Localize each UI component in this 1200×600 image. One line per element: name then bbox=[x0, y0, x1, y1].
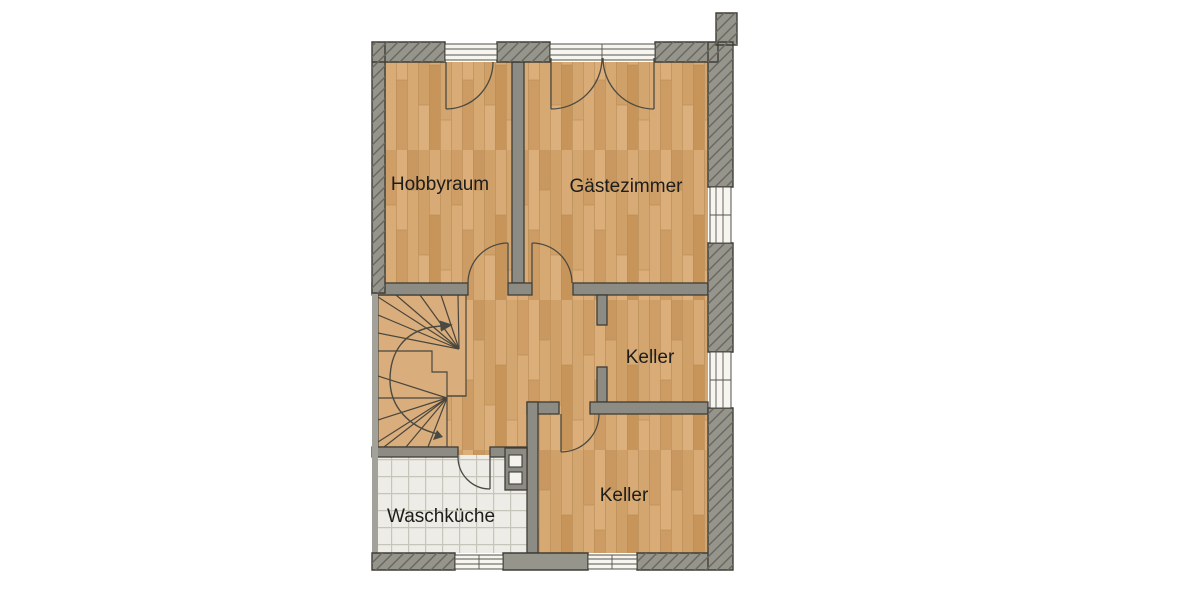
label-gaestezimmer: Gästezimmer bbox=[570, 176, 684, 197]
window-waschkueche-bottom bbox=[455, 555, 503, 569]
wall-keller1-stub-bottom bbox=[597, 367, 607, 402]
chimney-flue-1 bbox=[509, 455, 522, 467]
label-keller-2: Keller bbox=[600, 485, 649, 506]
label-hobbyraum: Hobbyraum bbox=[391, 174, 489, 195]
label-waschkueche: Waschküche bbox=[387, 506, 495, 527]
wall-keller1-stub-top bbox=[597, 295, 607, 325]
window-hobbyraum-top bbox=[445, 44, 497, 60]
window-keller2-bottom bbox=[588, 555, 637, 569]
wall-hobby-gaeste bbox=[512, 62, 524, 283]
window-keller1-right bbox=[710, 352, 731, 408]
wall-left-thin bbox=[372, 293, 378, 553]
floor-plan-page: Hobbyraum Gästezimmer Keller Keller Wasc… bbox=[0, 0, 1200, 600]
wall-waschkueche-top bbox=[372, 447, 458, 457]
wall-gaeste-keller bbox=[573, 283, 708, 295]
window-gaestezimmer-top bbox=[550, 44, 655, 60]
wall-keller2-left bbox=[527, 402, 538, 553]
wall-keller1-keller2 bbox=[590, 402, 708, 414]
wall-hall-hobby bbox=[372, 283, 468, 295]
window-gaestezimmer-right bbox=[710, 187, 731, 243]
wall-foot-center bbox=[508, 283, 532, 295]
chimney-flue-2 bbox=[509, 472, 522, 484]
label-keller-1: Keller bbox=[626, 347, 675, 368]
floor-plan: Hobbyraum Gästezimmer Keller Keller Wasc… bbox=[0, 0, 1200, 600]
